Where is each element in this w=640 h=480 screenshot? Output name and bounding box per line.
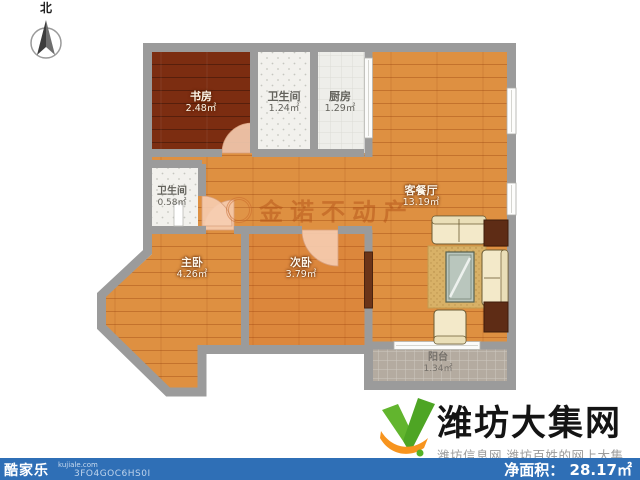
plan-id: 3FO4GOC6HS0I xyxy=(74,469,151,479)
floorplan-image: 北 金诺不动产 书房 2.48㎡ 卫生间 1.24㎡ 厨房 1.29㎡ 客餐厅 … xyxy=(0,0,640,480)
sofa-two-seat xyxy=(432,216,486,244)
kujiale-logo: 酷家乐 xyxy=(4,460,49,480)
v-logo-icon xyxy=(380,397,436,459)
floor-bathroom-small xyxy=(148,166,198,228)
site-logo: 潍坊大集网 潍坊信息网 潍坊百姓的网上大集 xyxy=(380,395,638,457)
compass: 北 xyxy=(22,2,70,68)
compass-arrow-icon xyxy=(22,14,70,64)
floor-bathroom-top xyxy=(258,52,310,153)
armchair xyxy=(434,310,466,344)
net-area: 净面积： 28.17㎡ xyxy=(504,459,632,480)
door-leaf-bathroom-small xyxy=(174,203,183,226)
net-area-label: 净面积： xyxy=(504,461,564,479)
floor-balcony xyxy=(372,349,507,382)
floor-kitchen xyxy=(318,52,364,153)
compass-north-label: 北 xyxy=(22,2,70,14)
door-panel-second-bedroom xyxy=(365,252,373,308)
site-name: 潍坊大集网 xyxy=(437,395,637,446)
kujiale-url: kujiale.com xyxy=(58,461,98,469)
floor-master-bedroom xyxy=(106,231,242,390)
side-cabinet-top xyxy=(484,220,508,246)
net-area-value: 28.17㎡ xyxy=(570,461,632,479)
side-cabinet-bottom xyxy=(484,302,508,332)
sofa-three-seat xyxy=(482,250,508,306)
footer-bar: 酷家乐 kujiale.com 3FO4GOC6HS0I 净面积： 28.17㎡ xyxy=(0,458,640,480)
